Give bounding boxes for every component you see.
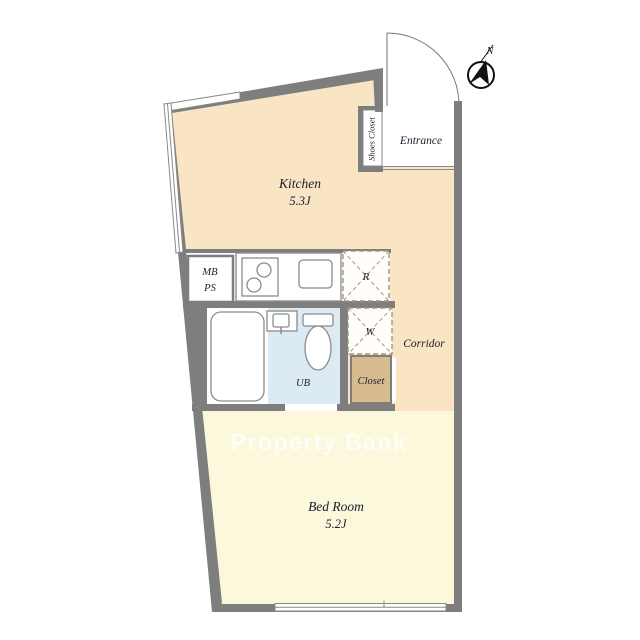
shoes-closet-top-wall <box>358 106 383 110</box>
meter-box-label-line1: MB <box>201 267 218 278</box>
right-wall <box>454 101 462 612</box>
kitchen-sink <box>299 260 332 288</box>
watermark-text: Property Bank <box>231 429 408 455</box>
floorplan-drawing: Kitchen 5.3J Bed Room 5.2J Entrance Corr… <box>0 0 640 640</box>
bathtub <box>211 312 264 401</box>
refrigerator-label: R <box>362 272 370 283</box>
shoes-closet-wall <box>358 106 363 172</box>
kitchen-fixtures <box>188 251 389 302</box>
compass-north-icon: N <box>468 45 495 88</box>
shoes-closet-bottom-wall <box>358 166 383 172</box>
shoes-closet-label: Shoes Closet <box>366 117 376 161</box>
unit-bath-label: UB <box>296 378 311 389</box>
bath-door-opening <box>285 404 337 411</box>
meter-box-label-line2: PS <box>203 283 216 294</box>
entrance-door-arc <box>387 33 459 105</box>
corridor-label: Corridor <box>403 338 445 350</box>
unit-bath-right-wall <box>340 305 348 405</box>
washer-label: W <box>366 327 376 338</box>
bedroom-area-label: 5.2J <box>325 517 348 531</box>
storage-fixtures <box>348 308 396 403</box>
kitchen-area-label: 5.3J <box>289 194 312 208</box>
floorplan-page: Kitchen 5.3J Bed Room 5.2J Entrance Corr… <box>0 0 640 640</box>
stove-burner-2 <box>247 278 261 292</box>
compass-north-label: N <box>486 46 495 57</box>
bath-bottom-wall-left <box>192 404 285 411</box>
stove-burner-1 <box>257 263 271 277</box>
closet-label: Closet <box>358 376 386 387</box>
kitchen-label: Kitchen <box>278 176 321 191</box>
entrance-label: Entrance <box>399 135 442 147</box>
washbasin-bowl <box>273 314 289 327</box>
closet-door-gap <box>392 357 396 402</box>
bedroom-label: Bed Room <box>308 499 364 514</box>
toilet-tank <box>303 314 333 326</box>
bath-bottom-wall-right <box>337 404 395 411</box>
toilet-bowl <box>305 326 331 370</box>
meter-box <box>188 256 233 302</box>
